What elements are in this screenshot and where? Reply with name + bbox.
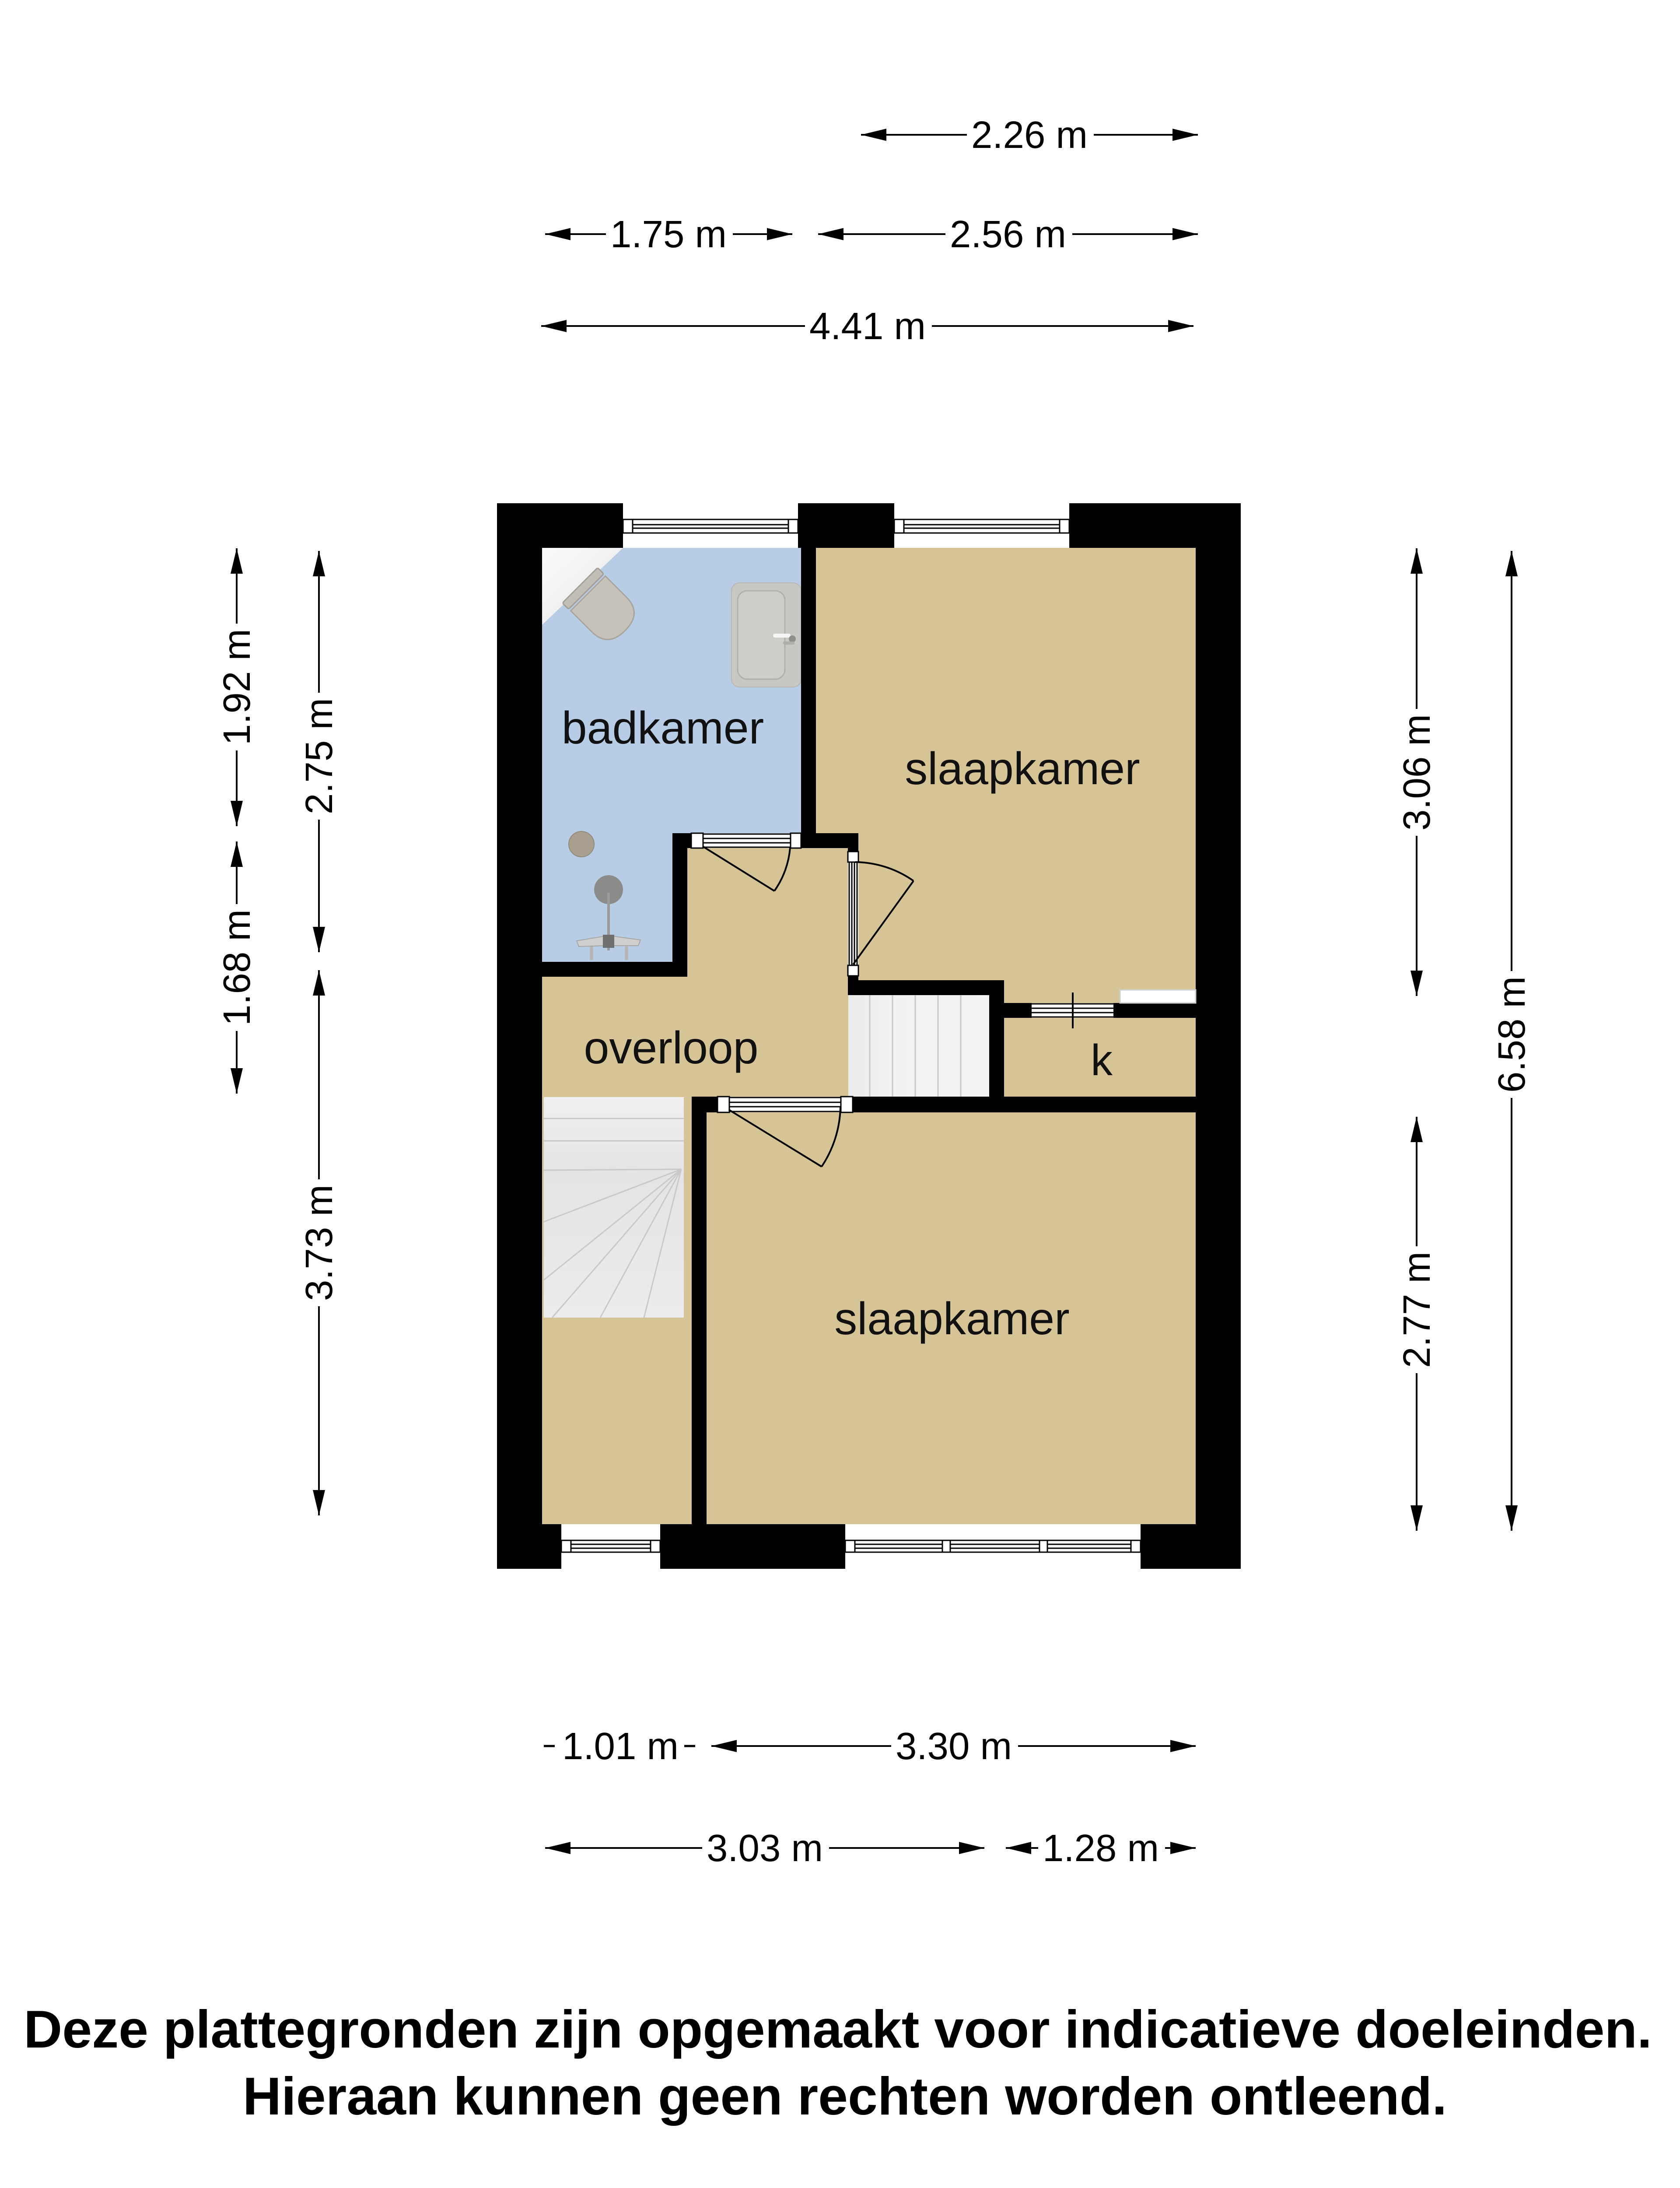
svg-text:slaapkamer: slaapkamer xyxy=(905,743,1140,794)
svg-text:1.68 m: 1.68 m xyxy=(216,909,258,1026)
svg-text:1.92 m: 1.92 m xyxy=(216,629,258,745)
svg-text:3.30 m: 3.30 m xyxy=(896,1725,1012,1767)
svg-text:slaapkamer: slaapkamer xyxy=(834,1294,1070,1344)
svg-text:3.03 m: 3.03 m xyxy=(707,1827,823,1869)
svg-text:6.58 m: 6.58 m xyxy=(1491,976,1533,1093)
svg-text:1.01 m: 1.01 m xyxy=(562,1725,679,1767)
svg-text:Deze plattegronden zijn opgema: Deze plattegronden zijn opgemaakt voor i… xyxy=(24,1999,1652,2059)
svg-text:k: k xyxy=(1091,1036,1113,1085)
svg-text:4.41 m: 4.41 m xyxy=(809,305,926,347)
svg-text:2.77 m: 2.77 m xyxy=(1396,1252,1438,1368)
svg-text:2.56 m: 2.56 m xyxy=(950,213,1066,256)
svg-text:2.75 m: 2.75 m xyxy=(298,698,340,814)
svg-text:Hieraan kunnen geen rechten wo: Hieraan kunnen geen rechten worden ontle… xyxy=(243,2066,1447,2126)
svg-text:3.06 m: 3.06 m xyxy=(1396,714,1438,831)
svg-text:3.73 m: 3.73 m xyxy=(298,1185,340,1301)
svg-text:badkamer: badkamer xyxy=(562,703,764,754)
svg-text:1.75 m: 1.75 m xyxy=(610,213,727,256)
svg-text:1.28 m: 1.28 m xyxy=(1043,1827,1159,1869)
svg-text:overloop: overloop xyxy=(584,1023,759,1073)
svg-text:2.26 m: 2.26 m xyxy=(971,114,1088,156)
